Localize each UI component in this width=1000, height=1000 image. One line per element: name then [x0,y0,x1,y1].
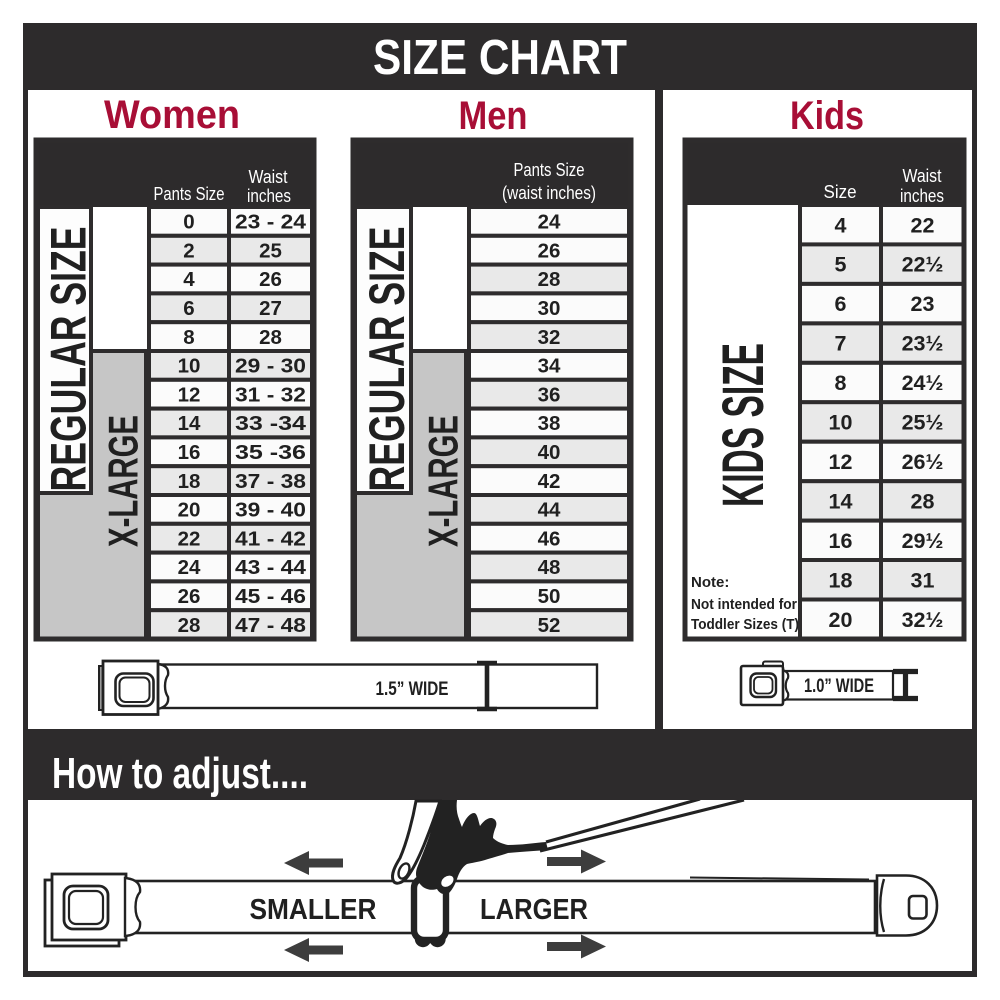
svg-text:12: 12 [178,383,201,406]
svg-text:24: 24 [178,556,201,579]
svg-text:38: 38 [538,412,561,435]
svg-text:20: 20 [178,499,201,522]
svg-text:20: 20 [829,608,853,632]
svg-text:6: 6 [183,297,194,320]
svg-text:10: 10 [178,355,201,378]
svg-text:14: 14 [178,412,201,435]
svg-text:Not intended for: Not intended for [691,596,797,613]
svg-text:1.5” WIDE: 1.5” WIDE [376,679,449,700]
svg-text:8: 8 [835,371,847,395]
svg-text:41 - 42: 41 - 42 [235,527,306,550]
svg-text:28: 28 [911,490,935,514]
svg-text:24: 24 [538,211,561,234]
svg-text:Size: Size [824,182,857,202]
svg-text:14: 14 [829,490,853,514]
svg-text:12: 12 [829,450,853,474]
svg-text:28: 28 [178,614,201,637]
svg-text:REGULAR SIZE: REGULAR SIZE [41,227,97,492]
svg-text:28: 28 [538,268,561,291]
svg-text:22: 22 [911,213,935,237]
svg-text:Waist: Waist [903,166,942,186]
svg-text:Women: Women [104,93,240,137]
svg-text:40: 40 [538,441,561,464]
svg-text:6: 6 [835,292,847,316]
svg-text:16: 16 [829,529,853,553]
svg-text:46: 46 [538,527,561,550]
svg-text:26½: 26½ [902,450,944,474]
svg-text:26: 26 [538,239,561,262]
svg-text:26: 26 [259,268,282,291]
svg-text:8: 8 [183,326,194,349]
svg-text:X-LARGE: X-LARGE [420,415,467,547]
svg-text:43 - 44: 43 - 44 [235,556,307,579]
svg-text:45 - 46: 45 - 46 [235,585,306,608]
svg-text:1.0” WIDE: 1.0” WIDE [804,676,874,697]
svg-text:29 - 30: 29 - 30 [235,355,306,378]
svg-text:SMALLER: SMALLER [250,894,377,926]
svg-text:24½: 24½ [902,371,944,395]
svg-text:SIZE CHART: SIZE CHART [373,31,627,85]
svg-text:31: 31 [911,568,935,592]
svg-text:34: 34 [538,355,561,378]
svg-text:39 - 40: 39 - 40 [235,499,306,522]
svg-text:48: 48 [538,556,561,579]
svg-text:Kids: Kids [790,94,864,138]
svg-text:23: 23 [911,292,935,316]
svg-text:35 -36: 35 -36 [235,441,306,464]
svg-text:0: 0 [183,211,194,234]
svg-text:18: 18 [829,568,853,592]
svg-text:(waist inches): (waist inches) [502,183,596,203]
svg-text:47 - 48: 47 - 48 [235,614,306,637]
svg-text:X-LARGE: X-LARGE [100,415,147,547]
svg-text:4: 4 [183,268,195,291]
svg-text:16: 16 [178,441,201,464]
svg-text:22½: 22½ [902,253,944,277]
svg-text:LARGER: LARGER [480,894,588,926]
svg-text:32½: 32½ [902,608,944,632]
svg-text:27: 27 [259,297,282,320]
svg-text:10: 10 [829,411,853,435]
svg-text:28: 28 [259,326,282,349]
svg-text:37 - 38: 37 - 38 [235,470,306,493]
svg-text:4: 4 [835,213,847,237]
svg-text:23 - 24: 23 - 24 [235,211,307,234]
svg-text:32: 32 [538,326,561,349]
svg-text:23½: 23½ [902,332,944,356]
svg-text:42: 42 [538,470,561,493]
svg-text:18: 18 [178,470,201,493]
svg-text:Note:: Note: [691,574,729,591]
svg-text:Pants Size: Pants Size [154,184,225,204]
svg-text:How to adjust....: How to adjust.... [52,749,308,798]
svg-text:50: 50 [538,585,561,608]
svg-text:KIDS SIZE: KIDS SIZE [711,343,776,507]
svg-text:Waist: Waist [249,167,288,187]
svg-text:5: 5 [835,253,847,277]
svg-text:30: 30 [538,297,561,320]
svg-text:36: 36 [538,383,561,406]
svg-text:Pants Size: Pants Size [514,160,585,180]
svg-text:26: 26 [178,585,201,608]
svg-text:Men: Men [459,94,528,138]
svg-text:22: 22 [178,527,201,550]
svg-text:33 -34: 33 -34 [235,412,307,435]
svg-text:44: 44 [538,499,561,522]
svg-text:25: 25 [259,239,282,262]
svg-text:Toddler Sizes (T): Toddler Sizes (T) [691,616,799,633]
svg-text:inches: inches [247,186,291,206]
svg-text:25½: 25½ [902,411,944,435]
svg-text:52: 52 [538,614,561,637]
svg-text:7: 7 [835,332,847,356]
svg-text:REGULAR SIZE: REGULAR SIZE [359,227,415,492]
svg-text:31 - 32: 31 - 32 [235,383,306,406]
svg-text:29½: 29½ [902,529,944,553]
svg-text:2: 2 [183,239,194,262]
